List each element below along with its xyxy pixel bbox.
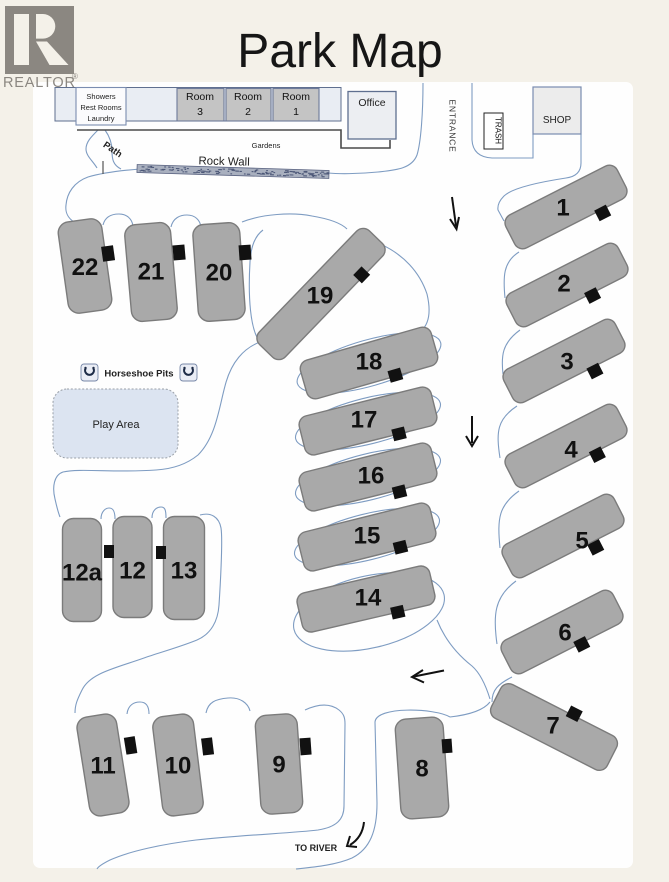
svg-text:10: 10: [165, 753, 192, 780]
svg-text:Room: Room: [234, 91, 262, 103]
svg-text:Room: Room: [282, 91, 310, 103]
svg-text:Room: Room: [186, 91, 214, 103]
svg-text:Laundry: Laundry: [87, 114, 114, 123]
svg-text:22: 22: [72, 254, 99, 281]
svg-text:Showers: Showers: [86, 92, 115, 101]
svg-text:Rest Rooms: Rest Rooms: [80, 103, 122, 112]
svg-text:Rock Wall: Rock Wall: [198, 155, 250, 168]
svg-text:4: 4: [564, 437, 578, 464]
svg-text:20: 20: [206, 260, 233, 287]
svg-text:1: 1: [556, 195, 569, 222]
svg-text:2: 2: [245, 106, 251, 118]
svg-text:14: 14: [355, 585, 382, 612]
svg-text:1: 1: [293, 106, 299, 118]
svg-text:3: 3: [560, 349, 573, 376]
svg-text:21: 21: [138, 259, 165, 286]
svg-text:®: ®: [72, 72, 78, 81]
svg-text:Gardens: Gardens: [252, 141, 281, 150]
svg-text:12: 12: [119, 558, 146, 585]
svg-text:6: 6: [558, 620, 571, 647]
svg-text:16: 16: [358, 463, 385, 490]
svg-text:9: 9: [272, 752, 285, 779]
svg-text:Play Area: Play Area: [92, 419, 140, 431]
svg-text:12a: 12a: [62, 560, 103, 587]
svg-text:8: 8: [415, 756, 428, 783]
svg-text:19: 19: [307, 283, 334, 310]
svg-text:5: 5: [575, 528, 588, 555]
svg-text:3: 3: [197, 106, 203, 118]
svg-text:7: 7: [546, 713, 559, 740]
svg-text:13: 13: [171, 558, 198, 585]
svg-text:SHOP: SHOP: [543, 115, 572, 126]
svg-text:Office: Office: [358, 97, 385, 109]
svg-text:17: 17: [351, 407, 378, 434]
svg-text:TO RIVER: TO RIVER: [295, 843, 338, 853]
svg-text:2: 2: [557, 271, 570, 298]
svg-text:Park Map: Park Map: [237, 25, 442, 78]
svg-text:11: 11: [90, 753, 115, 780]
svg-text:15: 15: [354, 523, 381, 550]
svg-text:TRASH: TRASH: [494, 117, 503, 144]
svg-text:18: 18: [356, 349, 383, 376]
svg-text:ENTRANCE: ENTRANCE: [448, 99, 458, 152]
svg-text:Horseshoe Pits: Horseshoe Pits: [104, 369, 173, 380]
